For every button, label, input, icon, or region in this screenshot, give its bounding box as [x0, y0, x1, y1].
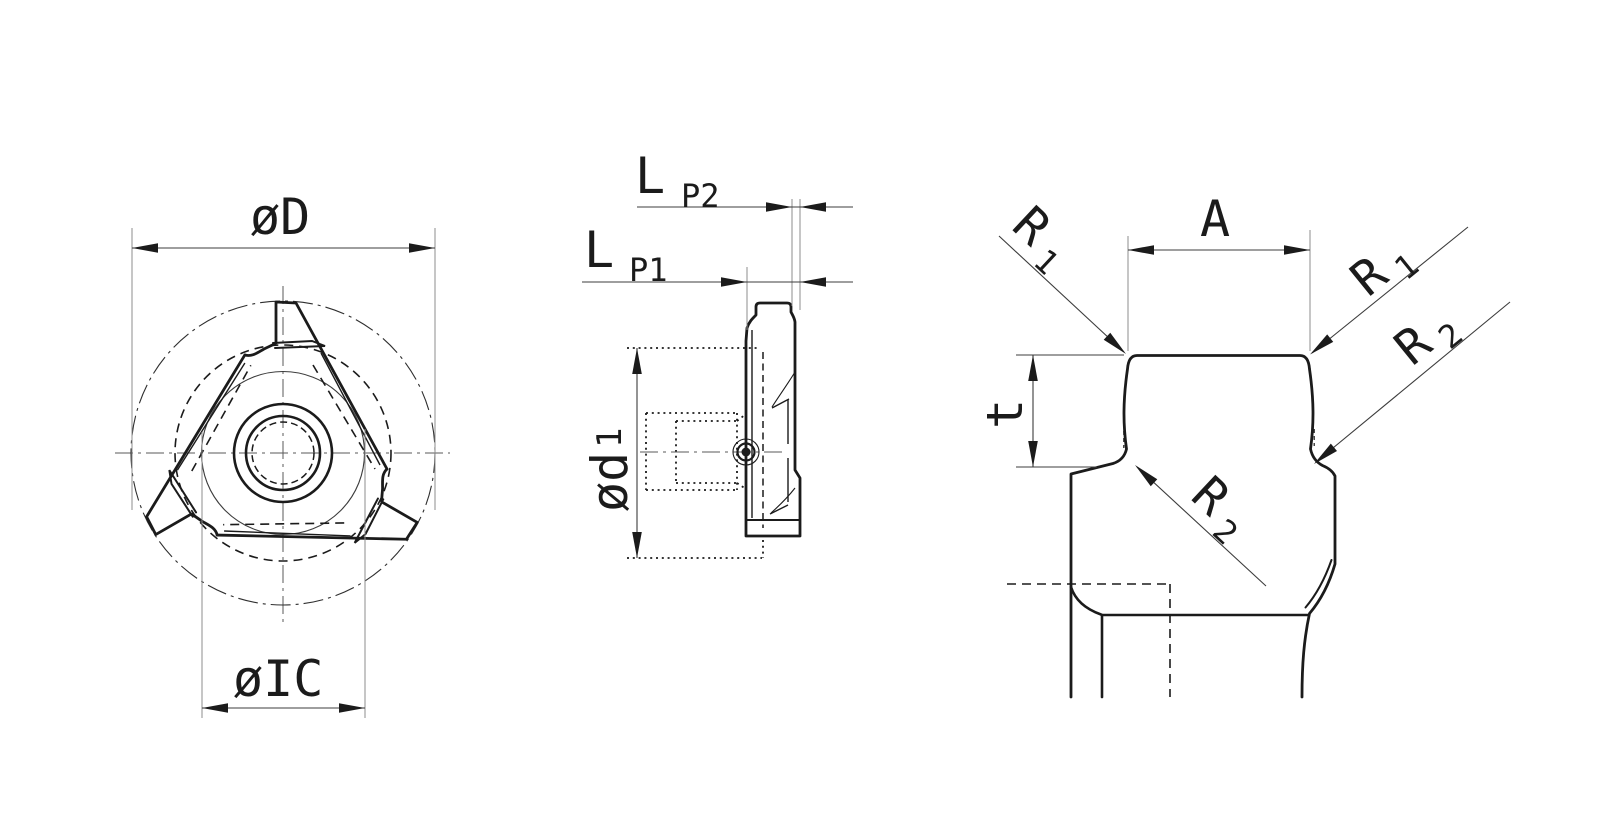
- width-a-dimension: A: [1128, 190, 1310, 351]
- depth-t-dimension: t: [976, 355, 1124, 467]
- top-view: øD øIC: [100, 188, 450, 718]
- dimension-arrow: [409, 243, 435, 253]
- corner-tooth-top: [245, 302, 387, 469]
- drawing-canvas: øD øIC: [0, 0, 1600, 831]
- dimension-arrow: [1128, 245, 1154, 255]
- dimension-arrow: [800, 202, 826, 212]
- lower-left-fillet: [1071, 587, 1101, 615]
- length-label: L: [635, 147, 665, 205]
- leader-arrow: [1104, 333, 1130, 358]
- leader-arrow: [1132, 461, 1158, 486]
- r1-subscript: 1: [1026, 241, 1066, 282]
- dimension-arrow: [632, 348, 642, 374]
- leader-arrow: [1307, 334, 1333, 358]
- p2-subscript: P2: [681, 177, 720, 215]
- dimension-arrow: [632, 532, 642, 558]
- r1-subscript: 1: [1387, 246, 1426, 288]
- profile-outline: [1071, 356, 1335, 698]
- length-p1-dimension: L P1: [582, 221, 853, 330]
- depth-t-label: t: [976, 399, 1034, 429]
- radius-r2-leader-right: R 2: [1311, 296, 1510, 468]
- dimension-arrow: [202, 703, 228, 713]
- bore-diameter-dimension: ød 1: [581, 348, 642, 558]
- r2-subscript: 2: [1205, 511, 1245, 552]
- length-label: L: [584, 221, 614, 279]
- leader-arrow: [1311, 444, 1337, 468]
- inscribed-circle-label: øIC: [233, 650, 323, 708]
- dimension-arrow: [800, 277, 826, 287]
- radius-label: R: [1384, 315, 1442, 377]
- break-line: [771, 488, 795, 513]
- width-a-label: A: [1200, 190, 1230, 248]
- dimension-arrow: [1028, 355, 1038, 381]
- insert-outline: [100, 302, 433, 619]
- side-view: L P2 L P1 ød 1: [581, 147, 853, 558]
- dimension-arrow: [766, 202, 792, 212]
- corner-tooth-bottom-left: [100, 355, 316, 561]
- side-profile-outline: [746, 303, 800, 536]
- dimension-arrow: [1028, 441, 1038, 467]
- dimension-arrow: [132, 243, 158, 253]
- bore-subscript: 1: [590, 428, 630, 448]
- dimension-arrow: [339, 703, 365, 713]
- insert-technical-drawing: øD øIC: [0, 0, 1600, 831]
- tooth-profile-detail-view: A t R 1 R 1: [976, 190, 1510, 697]
- radius-label: R: [1340, 246, 1398, 308]
- r2-subscript: 2: [1431, 315, 1470, 357]
- radius-r1-leader-left: R 1: [997, 196, 1129, 358]
- dimension-arrow: [1284, 245, 1310, 255]
- radius-r2-leader-center: R 2: [1132, 461, 1266, 586]
- p1-subscript: P1: [629, 251, 668, 289]
- corner-tooth-bottom-right: [217, 412, 433, 618]
- bore-diameter-label: ød: [581, 452, 639, 512]
- outer-diameter-label: øD: [250, 188, 310, 246]
- cross-hole-symbol: [733, 439, 759, 465]
- dimension-arrow: [721, 277, 747, 287]
